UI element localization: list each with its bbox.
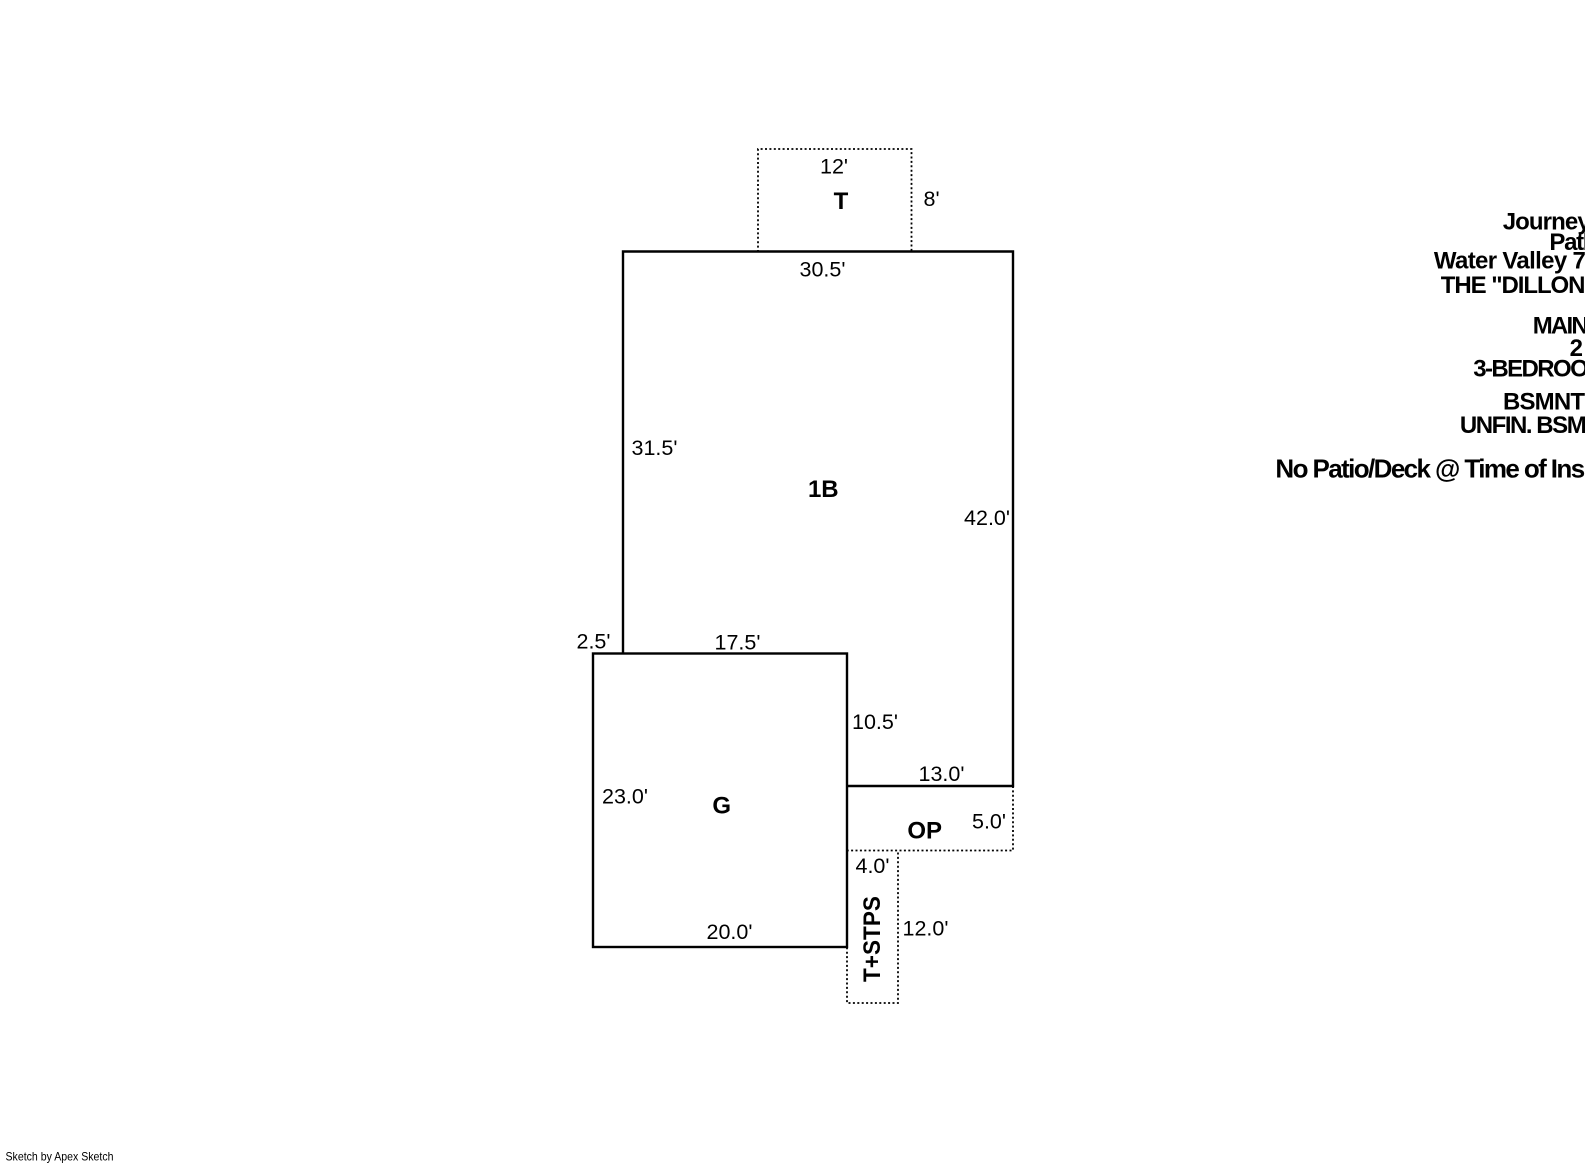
svg-text:T+STPS: T+STPS bbox=[859, 896, 886, 982]
svg-text:10.5': 10.5' bbox=[852, 710, 898, 734]
svg-text:No Patio/Deck @ Time of Inspec: No Patio/Deck @ Time of Inspection bbox=[1275, 453, 1585, 483]
svg-text:12': 12' bbox=[820, 155, 848, 179]
svg-text:5.0': 5.0' bbox=[972, 810, 1006, 834]
svg-text:8': 8' bbox=[924, 187, 940, 211]
svg-text:THE "DILLON": THE "DILLON" bbox=[1441, 272, 1585, 299]
svg-text:OP: OP bbox=[907, 818, 942, 845]
svg-text:42.0': 42.0' bbox=[964, 506, 1010, 530]
svg-text:17.5': 17.5' bbox=[715, 631, 761, 655]
svg-text:20.0': 20.0' bbox=[707, 920, 753, 944]
svg-text:30.5': 30.5' bbox=[800, 258, 846, 282]
svg-text:Water Valley 7: Water Valley 7 bbox=[1434, 248, 1585, 275]
svg-text:2.5': 2.5' bbox=[577, 630, 611, 654]
svg-text:31.5': 31.5' bbox=[632, 436, 678, 460]
svg-text:4.0': 4.0' bbox=[856, 854, 890, 878]
svg-text:Sketch by Apex Sketch: Sketch by Apex Sketch bbox=[6, 1150, 114, 1163]
svg-text:1B: 1B bbox=[808, 476, 839, 503]
svg-text:3-BEDROOM: 3-BEDROOM bbox=[1473, 356, 1585, 383]
svg-text:23.0': 23.0' bbox=[602, 785, 648, 809]
svg-text:T: T bbox=[834, 188, 849, 215]
svg-text:12.0': 12.0' bbox=[903, 917, 949, 941]
svg-text:UNFIN. BSMT: UNFIN. BSMT bbox=[1460, 412, 1585, 439]
svg-text:G: G bbox=[712, 793, 731, 820]
svg-text:13.0': 13.0' bbox=[919, 762, 965, 786]
